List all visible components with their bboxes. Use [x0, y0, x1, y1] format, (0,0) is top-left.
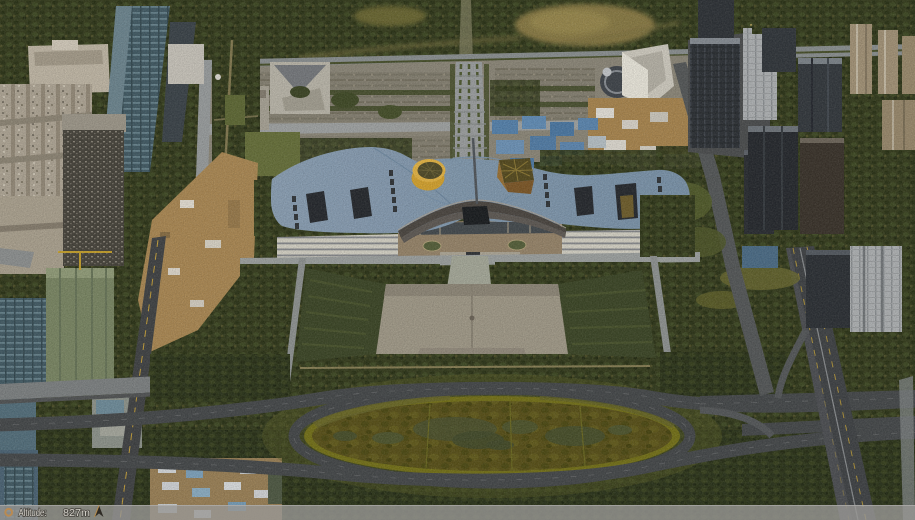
- svg-text:827m: 827m: [63, 507, 90, 519]
- svg-text:Altitude:: Altitude:: [19, 507, 47, 519]
